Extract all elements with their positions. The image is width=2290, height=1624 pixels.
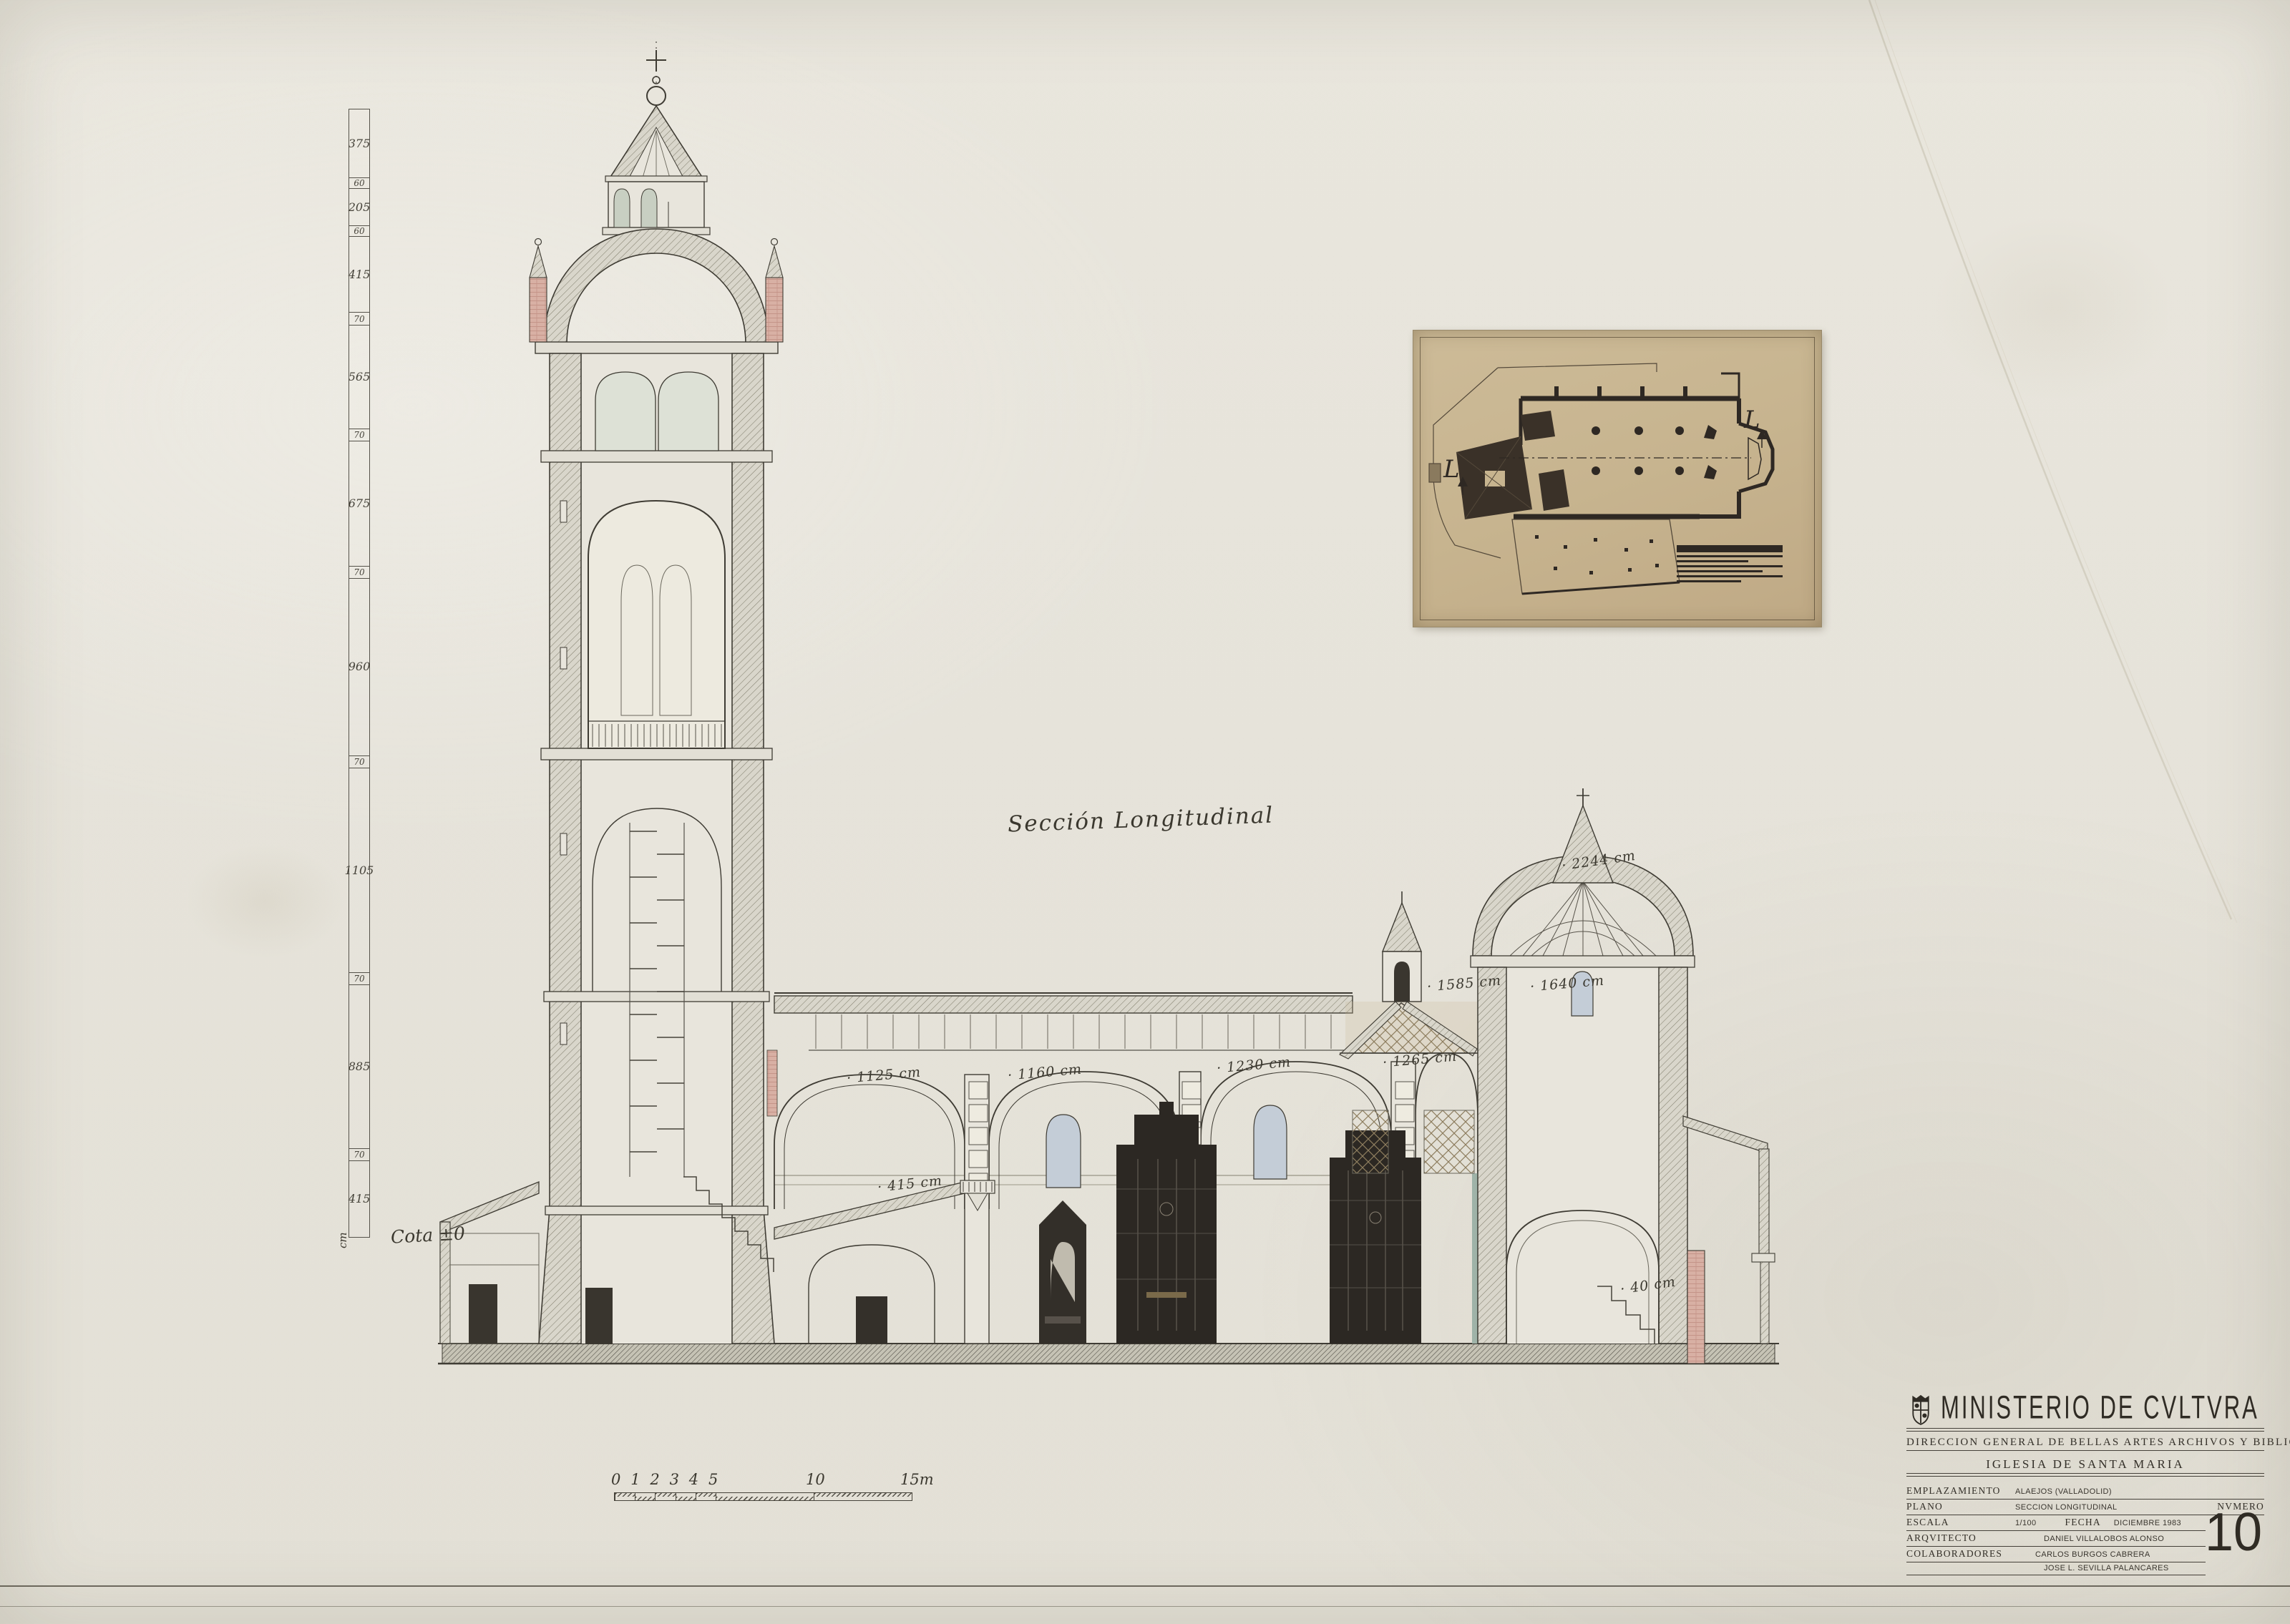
tower-cornice-top [535, 342, 778, 353]
field-value: DICIEMBRE 1983 [2114, 1519, 2181, 1527]
titleblock-row: ESCALA 1/100 FECHA DICIEMBRE 1983 [1906, 1515, 2206, 1531]
scale-end-label: 15m [900, 1471, 934, 1488]
field-label: ESCALA [1906, 1517, 2015, 1528]
scale-tick-label: 10 [806, 1471, 825, 1488]
cota-zero-label: Cota ±0 [390, 1223, 465, 1247]
field-label: COLABORADORES [1906, 1548, 2015, 1560]
ruler-segment: 70 [349, 429, 370, 441]
ruler-segment: 885 [349, 984, 370, 1149]
field-value: 1/100 [2015, 1519, 2037, 1527]
ruler-segment: 70 [349, 972, 370, 985]
belfry-arch [588, 501, 725, 748]
sheet-border-line [0, 1585, 2290, 1587]
ruler-segment: 415 [349, 1160, 370, 1238]
field-value: JOSE L. SEVILLA PALANCARES [2044, 1564, 2169, 1572]
scale-tick-label: 5 [708, 1471, 718, 1488]
funerary-monument [1039, 1200, 1086, 1344]
tower-lantern [603, 176, 710, 235]
ruler-segment: 960 [349, 578, 370, 756]
scale-bar [614, 1492, 912, 1501]
sheet-number: 10 [2207, 1501, 2260, 1564]
vertical-dimension-ruler: 3756020560415705657067570960701105708857… [349, 109, 370, 1238]
coat-of-arms-icon [1906, 1394, 1935, 1427]
sheet-border-line [0, 1606, 2290, 1607]
scale-tick-label: 2 [650, 1471, 659, 1488]
tower-base-niche [585, 1288, 613, 1344]
inset-frame [1420, 337, 1815, 620]
retablo-1 [1116, 1102, 1217, 1344]
roof-structure [816, 1014, 1331, 1049]
tower-wall-right [732, 353, 774, 1344]
ruler-segment: 60 [349, 177, 370, 189]
dormer [1383, 891, 1421, 1002]
side-chapel [774, 1182, 965, 1344]
titleblock-row: COLABORADORES CARLOS BURGOS CABRERA [1906, 1547, 2206, 1562]
bell-tower [530, 41, 783, 1344]
brick-wall-strip [1687, 1251, 1705, 1364]
crossing-tower [1471, 788, 1695, 1344]
scale-tick-label: 3 [670, 1471, 679, 1488]
titleblock-row: JOSE L. SEVILLA PALANCARES [1906, 1562, 2206, 1575]
titleblock-row: EMPLAZAMIENTO ALAEJOS (VALLADOLID) [1906, 1484, 2264, 1500]
ruler-segment: 70 [349, 566, 370, 579]
ruler-segment: 70 [349, 1148, 370, 1161]
title-block: MINISTERIO DE CVLTVRA DIRECCION GENERAL … [1906, 1394, 2264, 1575]
field-label: PLANO [1906, 1501, 2015, 1512]
field-value: ALAEJOS (VALLADOLID) [2015, 1487, 2112, 1496]
ruler-segment: 415 [349, 236, 370, 313]
ruler-segment: 565 [349, 325, 370, 430]
project-title: IGLESIA DE SANTA MARIA [1906, 1457, 2264, 1472]
scale-tick-label: 4 [689, 1471, 698, 1488]
field-label: ARQVITECTO [1906, 1532, 2015, 1544]
ruler-segment: 60 [349, 225, 370, 237]
paper-crease [1869, 0, 2237, 923]
field-value: SECCION LONGITUDINAL [2015, 1503, 2117, 1512]
titleblock-row: ARQVITECTO DANIEL VILLALOBOS ALONSO [1906, 1531, 2206, 1547]
ruler-segment: 375 [349, 109, 370, 178]
floor-plan-inset-photo: L L [1413, 331, 1821, 627]
tower-finial [646, 41, 666, 105]
ruler-segment: 675 [349, 441, 370, 566]
ground-band [438, 1344, 1779, 1364]
ruler-segment: 70 [349, 755, 370, 768]
field-label: FECHA [2065, 1517, 2101, 1528]
ruler-unit-label: cm [336, 1232, 349, 1248]
ministry-title: MINISTERIO DE CVLTVRA [1941, 1389, 2264, 1427]
field-label: EMPLAZAMIENTO [1906, 1485, 2015, 1497]
field-value: CARLOS BURGOS CABRERA [2035, 1550, 2150, 1559]
ruler-segment: 205 [349, 188, 370, 226]
ruler-segment: 1105 [349, 768, 370, 973]
ruler-segment: 70 [349, 312, 370, 325]
field-value: DANIEL VILLALOBOS ALONSO [2044, 1535, 2164, 1543]
east-end [1683, 1116, 1775, 1364]
nave-roof [774, 996, 1353, 1013]
drawing-sheet: { "colors": { "paper": "#e6e3da", "inset… [0, 0, 2290, 1624]
scale-tick-label: 0 [611, 1471, 620, 1488]
graphic-scale-bar: 0123451015m [614, 1471, 929, 1508]
scale-tick-label: 1 [630, 1471, 640, 1488]
left-annex [440, 1182, 539, 1344]
department-title: DIRECCION GENERAL DE BELLAS ARTES ARCHIV… [1906, 1437, 2264, 1449]
tower-spire [608, 106, 704, 180]
tower-dome [544, 229, 769, 343]
